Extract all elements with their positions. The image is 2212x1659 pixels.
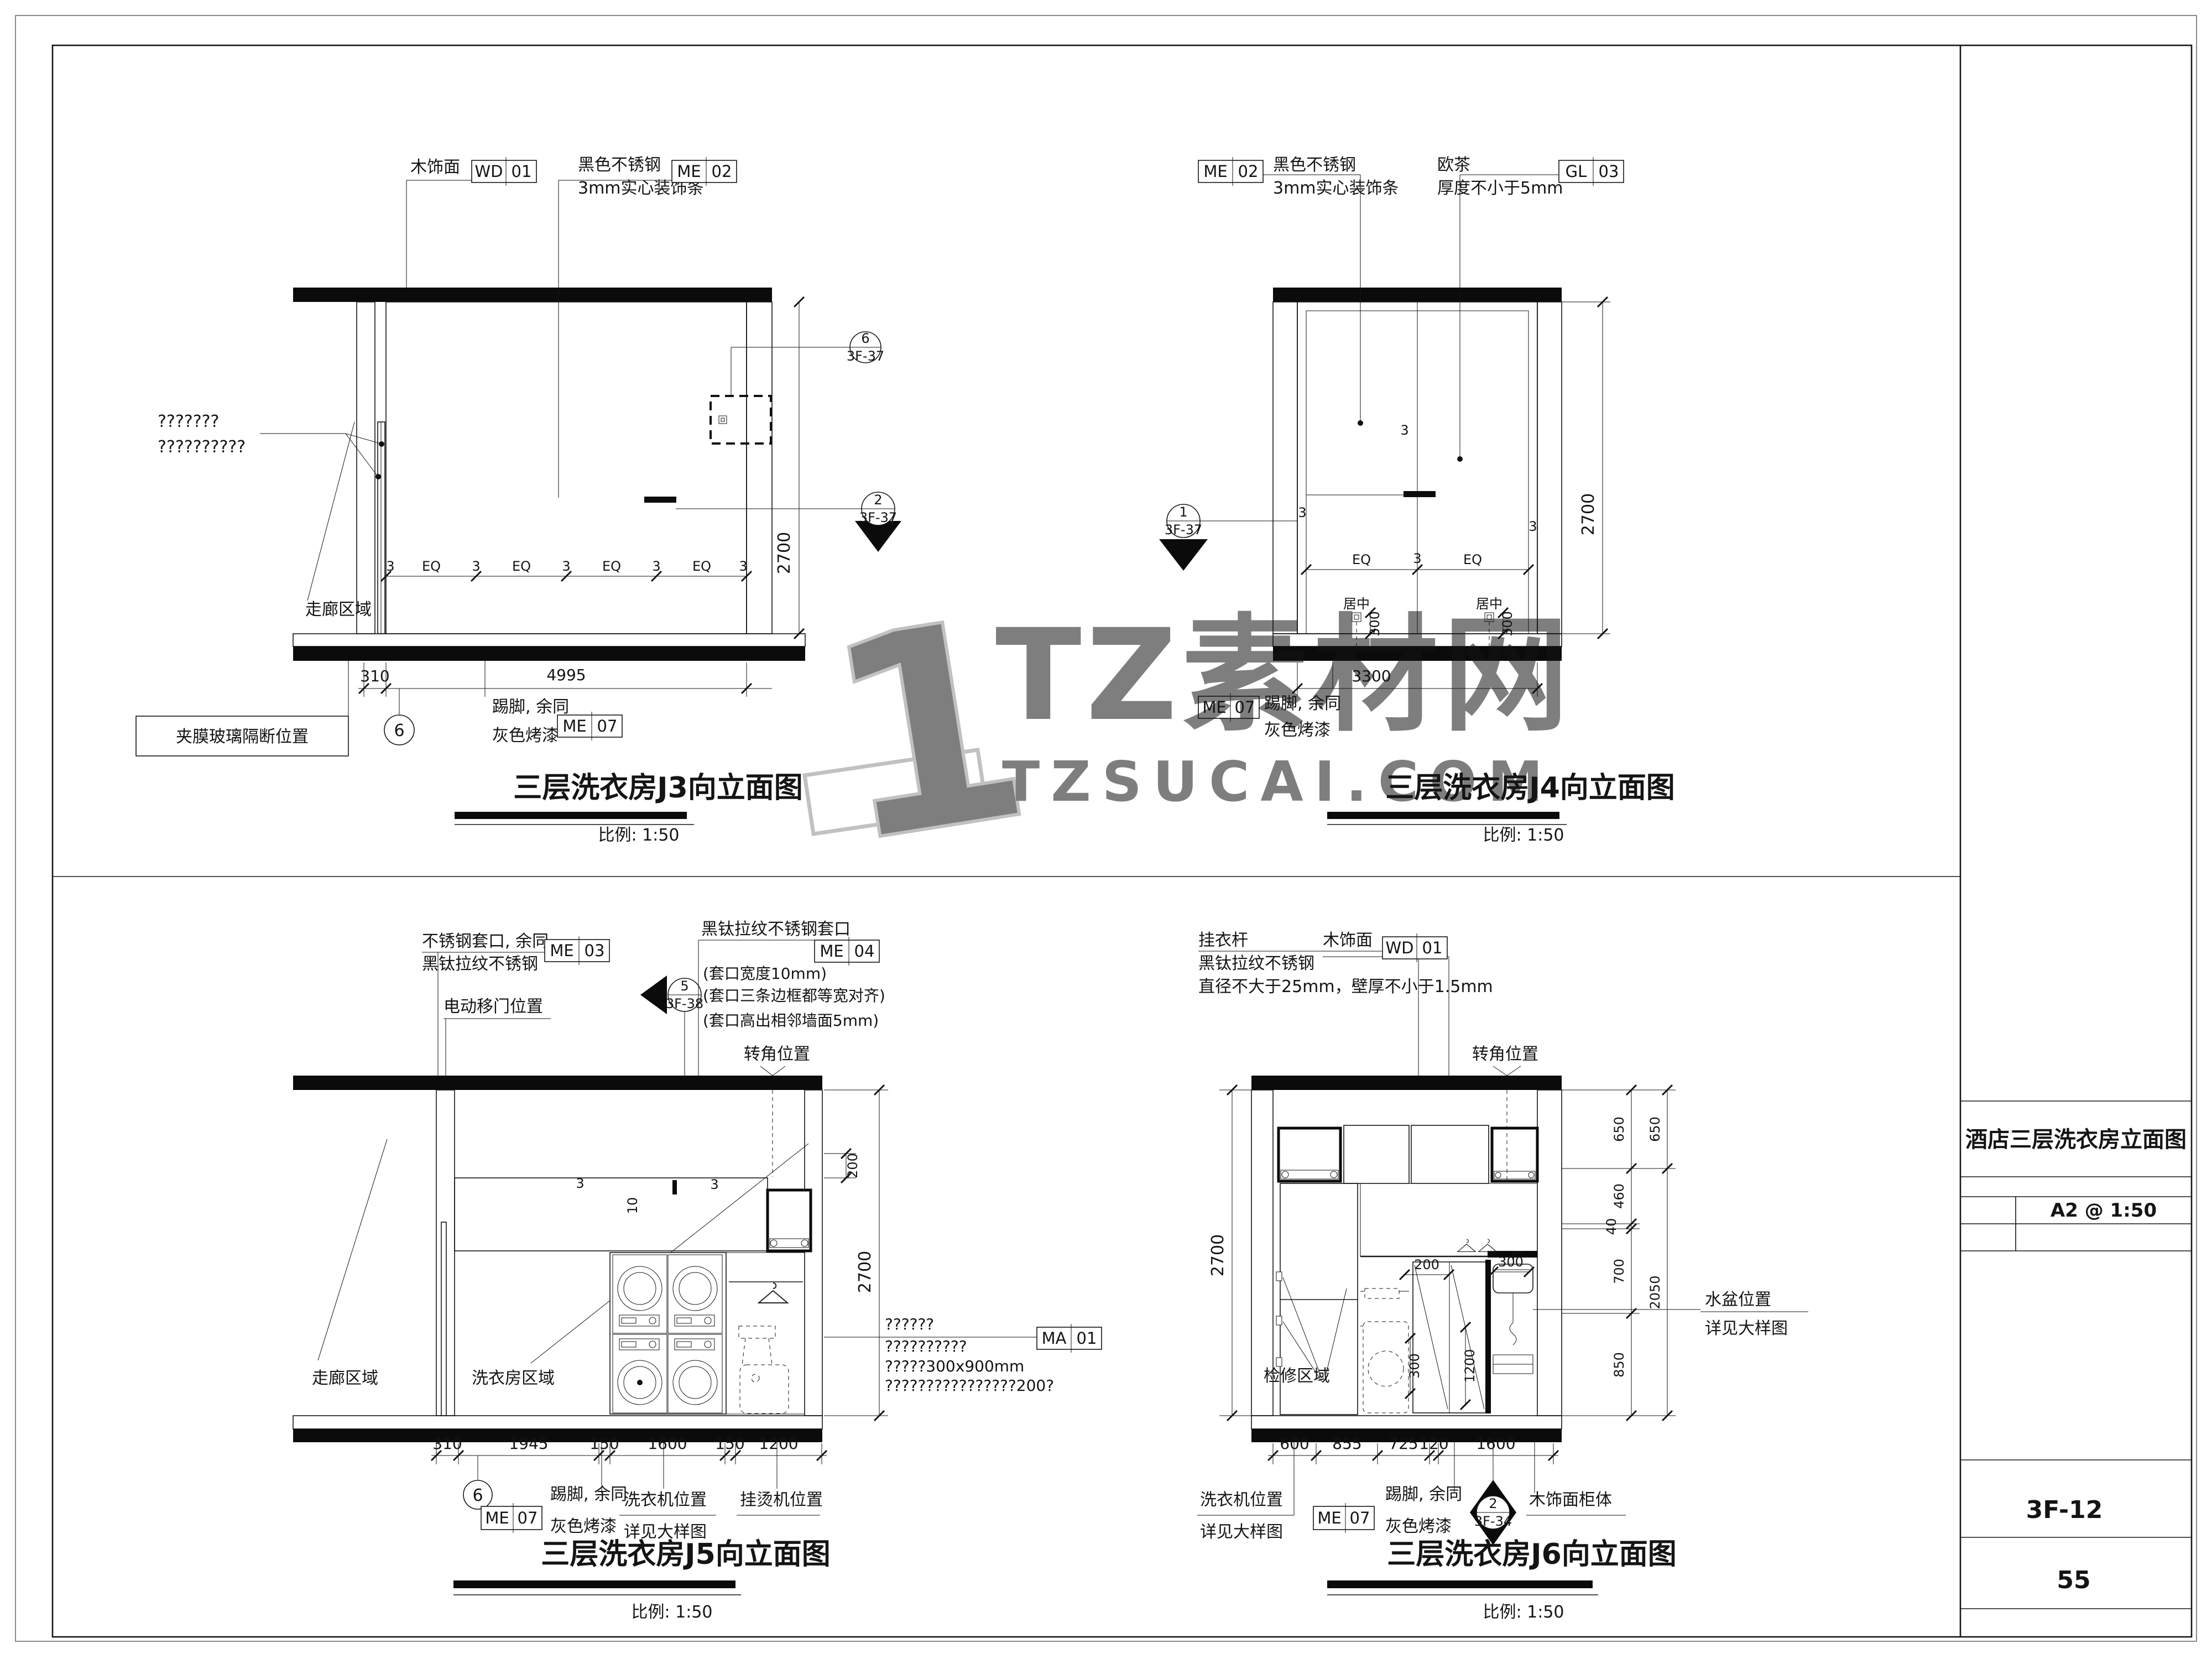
j5-label-washer: 洗衣机位置 <box>624 1490 707 1510</box>
svg-text:3F-34: 3F-34 <box>1474 1514 1512 1529</box>
svg-text:3: 3 <box>652 559 660 574</box>
svg-text:150: 150 <box>715 1434 744 1453</box>
j6-label-rod-a: 挂衣杆 <box>1198 931 1248 950</box>
j3-scale: 比例: 1:50 <box>598 826 679 845</box>
j4-label-tea-mirror: 欧茶 <box>1437 155 1470 175</box>
j6-label-basin-detail: 详见大样图 <box>1705 1319 1788 1338</box>
svg-text:ME: ME <box>562 717 586 735</box>
j3-dim-310: 310 <box>360 667 389 685</box>
svg-text:07: 07 <box>597 717 618 735</box>
j5-label-frame-a: 不锈钢套口, 余同 <box>422 932 549 951</box>
svg-text:WD: WD <box>474 162 503 181</box>
j5-label-skirting-b: 灰色烤漆 <box>550 1517 617 1536</box>
svg-text:01: 01 <box>512 162 532 181</box>
j6-label-basin: 水盆位置 <box>1705 1290 1771 1310</box>
svg-text:2: 2 <box>1489 1496 1497 1511</box>
svg-text:ME: ME <box>550 941 573 960</box>
j6-label-access: 检修区域 <box>1264 1366 1330 1386</box>
j5-label-door-pos: 电动移门位置 <box>444 997 543 1016</box>
j6-label-rod-b: 黑钛拉纹不锈钢 <box>1198 954 1314 973</box>
svg-text:3: 3 <box>1413 551 1421 566</box>
tag-me02-j3: ME 02 <box>672 157 737 186</box>
j5-dim-10: 10 <box>625 1197 640 1214</box>
j4-label-thickness: 厚度不小于5mm <box>1437 179 1563 198</box>
j5-label-laundry: 洗衣房区域 <box>472 1369 555 1388</box>
svg-text:3: 3 <box>739 559 747 574</box>
j6-dim-2700: 2700 <box>1208 1234 1228 1276</box>
svg-text:3: 3 <box>562 559 570 574</box>
j3-label-corridor: 走廊区域 <box>305 600 372 619</box>
j6-label-skirting-a: 踢脚, 余同 <box>1385 1485 1462 1504</box>
j5-bubble-6: 6 <box>472 1486 483 1505</box>
watermark-brand: TZ素材网 <box>995 602 1573 749</box>
j4-joint-3-top: 3 <box>1400 422 1408 438</box>
svg-text:02: 02 <box>1238 162 1259 181</box>
svg-text:EQ: EQ <box>1352 552 1371 567</box>
j5-label-corridor: 走廊区域 <box>312 1369 378 1388</box>
j6-dim-300b: 300 <box>1407 1353 1422 1379</box>
j3-title: 三层洗衣房J3向立面图 <box>513 771 803 805</box>
j4-scale: 比例: 1:50 <box>1483 826 1564 845</box>
j6-dim-1200: 1200 <box>1462 1349 1478 1383</box>
tag-me03-j5: ME 03 <box>545 936 609 965</box>
svg-text:1600: 1600 <box>1476 1434 1515 1453</box>
svg-text:600: 600 <box>1280 1434 1309 1453</box>
svg-text:03: 03 <box>585 941 605 960</box>
j3-bubble-6: 6 <box>394 721 404 740</box>
j6-label-washer: 洗衣机位置 <box>1200 1490 1283 1510</box>
svg-text:01: 01 <box>1422 938 1443 957</box>
j6-label-skirting-b: 灰色烤漆 <box>1385 1517 1452 1536</box>
svg-text:3F-37: 3F-37 <box>1165 522 1202 538</box>
svg-text:6: 6 <box>861 331 869 346</box>
j5-dim-200: 200 <box>845 1153 860 1178</box>
section-marker-1-3f37: 1 3F-37 <box>1159 504 1297 571</box>
j4-label-strip: 3mm实心装饰条 <box>1273 179 1399 198</box>
j4-label-black-ss: 黑色不锈钢 <box>1273 155 1356 175</box>
tag-wd01-j3: WD 01 <box>472 157 536 186</box>
svg-text:EQ: EQ <box>602 559 621 574</box>
svg-text:725: 725 <box>1389 1434 1418 1453</box>
tag-me07-j3: ME 07 <box>557 712 622 740</box>
sheet-borders <box>15 15 2197 1641</box>
sheet-page: 55 <box>2057 1566 2090 1594</box>
svg-text:ME: ME <box>485 1509 509 1527</box>
svg-text:WD: WD <box>1385 938 1413 957</box>
j5-note-ma3: ?????300x900mm <box>885 1357 1024 1375</box>
j5-label-ti-frame: 黑钛拉纹不锈钢套口 <box>701 920 851 939</box>
elevation-j3: 木饰面 WD 01 黑色不锈钢 3mm实心装饰条 ME 02 ??????? ?… <box>136 155 901 845</box>
svg-text:04: 04 <box>854 942 875 961</box>
svg-text:02: 02 <box>712 162 732 181</box>
j6-label-veneer: 木饰面 <box>1323 931 1373 950</box>
j5-note-tin1: (套口宽度10mm) <box>703 964 827 983</box>
j6-dim-300a: 300 <box>1498 1254 1524 1270</box>
j5-label-corner: 转角位置 <box>744 1045 810 1064</box>
svg-text:850: 850 <box>1611 1352 1627 1378</box>
svg-text:07: 07 <box>518 1509 538 1527</box>
svg-text:EQ: EQ <box>512 559 531 574</box>
svg-text:07: 07 <box>1350 1509 1370 1527</box>
svg-text:03: 03 <box>1599 162 1619 181</box>
j5-note-ma1: ?????? <box>885 1315 934 1333</box>
j6-label-washer-detail: 详见大样图 <box>1200 1522 1283 1542</box>
svg-text:3: 3 <box>472 559 480 574</box>
j3-note-q10: ?????????? <box>158 437 246 457</box>
j5-title: 三层洗衣房J5向立面图 <box>541 1538 831 1571</box>
j5-label-skirting-a: 踢脚, 余同 <box>550 1485 627 1504</box>
svg-text:MA: MA <box>1042 1329 1067 1348</box>
j3-note-q7: ??????? <box>158 412 219 431</box>
j4-dim-2700: 2700 <box>1579 493 1598 535</box>
tag-ma01-j5: MA 01 <box>1037 1324 1102 1353</box>
title-block: 酒店三层洗衣房立面图 A2 @ 1:50 3F-12 55 <box>1960 1101 2192 1609</box>
svg-text:150: 150 <box>589 1434 619 1453</box>
svg-text:120: 120 <box>1419 1434 1448 1453</box>
svg-text:2050: 2050 <box>1647 1275 1663 1309</box>
j5-joint-3a: 3 <box>576 1176 584 1191</box>
svg-text:5: 5 <box>680 978 688 994</box>
j6-label-wood-cabinet: 木饰面柜体 <box>1529 1490 1612 1510</box>
tag-me07-j5: ME 07 <box>481 1503 542 1533</box>
svg-text:650: 650 <box>1647 1117 1663 1142</box>
section-marker-2-3f34: 2 3F-34 <box>1470 1442 1516 1545</box>
svg-text:ME: ME <box>1317 1509 1341 1527</box>
svg-text:ME: ME <box>677 162 701 181</box>
sheet-number: 3F-12 <box>2026 1496 2103 1524</box>
drawing-sheet: 木饰面 WD 01 黑色不锈钢 3mm实心装饰条 ME 02 ??????? ?… <box>0 0 2212 1659</box>
sheet-format-scale: A2 @ 1:50 <box>2051 1199 2157 1222</box>
j5-label-steamer: 挂烫机位置 <box>740 1490 823 1510</box>
j5-dim-2700: 2700 <box>855 1251 875 1293</box>
svg-text:1200: 1200 <box>759 1434 798 1453</box>
j5-note-ma2: ?????????? <box>885 1337 967 1355</box>
svg-text:EQ: EQ <box>692 559 711 574</box>
tag-me02-j4: ME 02 <box>1198 157 1263 186</box>
j5-note-tin3: (套口高出相邻墙面5mm) <box>703 1011 879 1030</box>
svg-text:GL: GL <box>1566 162 1587 181</box>
section-marker-5-3f38: 5 3F-38 <box>640 975 703 1076</box>
tag-wd01-j6: WD 01 <box>1383 933 1447 962</box>
svg-text:EQ: EQ <box>1463 552 1482 567</box>
j6-scale: 比例: 1:50 <box>1483 1603 1564 1622</box>
svg-text:650: 650 <box>1611 1117 1627 1142</box>
j4-joint-3-right: 3 <box>1528 519 1537 534</box>
svg-text:3F-37: 3F-37 <box>847 348 884 364</box>
j3-dim-2700: 2700 <box>775 532 794 574</box>
sheet-canvas: 木饰面 WD 01 黑色不锈钢 3mm实心装饰条 ME 02 ??????? ?… <box>0 0 2212 1659</box>
svg-text:1945: 1945 <box>509 1434 548 1453</box>
j3-label-skirting-a: 踢脚, 余同 <box>492 697 569 717</box>
svg-text:3: 3 <box>386 559 394 574</box>
j3-label-glass-partition: 夹膜玻璃隔断位置 <box>176 727 309 747</box>
svg-text:ME: ME <box>1203 162 1227 181</box>
tag-gl03-j4: GL 03 <box>1559 157 1624 186</box>
washer-dryer-stack <box>610 1253 726 1414</box>
tag-me04-j5: ME 04 <box>815 937 879 966</box>
j5-scale: 比例: 1:50 <box>631 1603 712 1622</box>
sheet-title: 酒店三层洗衣房立面图 <box>1965 1127 2187 1152</box>
tag-me07-j6: ME 07 <box>1313 1503 1374 1533</box>
elevation-j5: 10 3 3 走廊区域 洗衣房区域 不锈钢套口, 余同 黑钛拉纹不锈钢 ME 0… <box>293 920 1102 1622</box>
svg-text:40: 40 <box>1604 1218 1619 1235</box>
j3-dim-4995: 4995 <box>546 666 586 684</box>
svg-text:01: 01 <box>1077 1329 1097 1348</box>
j5-joint-3b: 3 <box>710 1177 718 1192</box>
svg-text:3F-37: 3F-37 <box>859 510 897 525</box>
j5-label-frame-b: 黑钛拉纹不锈钢 <box>422 954 538 974</box>
j3-label-skirting-b: 灰色烤漆 <box>492 726 559 745</box>
svg-text:1600: 1600 <box>648 1434 687 1453</box>
svg-text:1: 1 <box>1179 504 1187 520</box>
svg-text:EQ: EQ <box>422 559 441 574</box>
j6-label-corner: 转角位置 <box>1472 1045 1538 1064</box>
j5-note-ma4: ????????????????200? <box>885 1376 1054 1395</box>
j4-joint-3-left: 3 <box>1298 505 1306 520</box>
svg-text:ME: ME <box>820 942 843 961</box>
watermark: 1 TZ素材网 TZSUCAI.COM <box>805 558 1573 906</box>
elevation-j6: 200 300 300 1200 检修区域 挂衣杆 黑钛拉纹不锈钢 直径不大于2… <box>1197 931 1808 1622</box>
svg-text:460: 460 <box>1611 1183 1627 1209</box>
j5-note-tin2: (套口三条边框都等宽对齐) <box>703 987 885 1005</box>
svg-text:310: 310 <box>432 1434 462 1453</box>
svg-text:2: 2 <box>874 492 882 508</box>
svg-text:3F-38: 3F-38 <box>666 996 703 1011</box>
j6-title: 三层洗衣房J6向立面图 <box>1387 1538 1677 1571</box>
svg-text:855: 855 <box>1332 1434 1361 1453</box>
j3-label-wood-veneer: 木饰面 <box>410 158 460 177</box>
j6-dim-200: 200 <box>1414 1257 1439 1272</box>
svg-text:700: 700 <box>1611 1259 1627 1284</box>
j3-label-black-ss: 黑色不锈钢 <box>578 155 661 175</box>
detail-marker-6-3f37: 6 3F-37 <box>731 331 884 396</box>
watermark-site: TZSUCAI.COM <box>1002 749 1554 814</box>
